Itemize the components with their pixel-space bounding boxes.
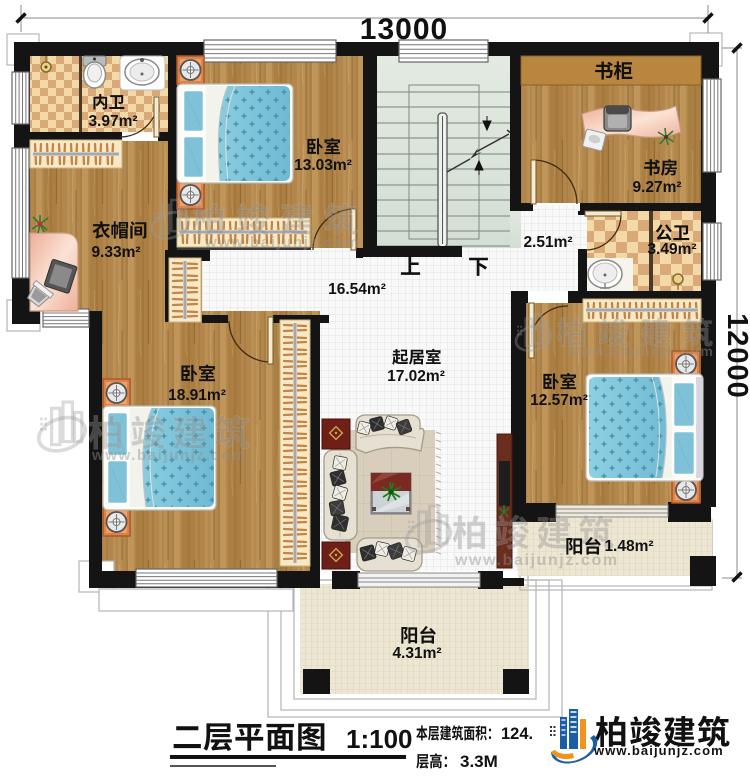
svg-text:www.baijunjz.com: www.baijunjz.com — [567, 343, 714, 359]
svg-text:4.31m²: 4.31m² — [392, 645, 441, 662]
svg-text:12.57m²: 12.57m² — [530, 392, 588, 409]
svg-text:1.48m²: 1.48m² — [604, 538, 653, 555]
svg-text:3.97m²: 3.97m² — [88, 113, 137, 130]
svg-text:www.baijunjz.com: www.baijunjz.com — [91, 447, 247, 464]
svg-text:124.: 124. — [501, 725, 533, 743]
svg-text:9.33m²: 9.33m² — [91, 244, 140, 261]
svg-text:www.baijunjz.com: www.baijunjz.com — [204, 234, 360, 251]
svg-text:www.baijunjz.com: www.baijunjz.com — [454, 552, 619, 569]
svg-text:12000: 12000 — [721, 313, 750, 399]
svg-text:www.baijunjz.com: www.baijunjz.com — [593, 743, 724, 758]
svg-text:3.49m²: 3.49m² — [647, 241, 696, 258]
svg-text:17.02m²: 17.02m² — [387, 368, 445, 385]
svg-text:2.51m²: 2.51m² — [523, 234, 572, 251]
svg-text:13000: 13000 — [360, 13, 448, 46]
svg-text:13.03m²: 13.03m² — [294, 157, 352, 174]
svg-text:18.91m²: 18.91m² — [168, 387, 226, 404]
svg-text:16.54m²: 16.54m² — [328, 281, 386, 298]
svg-text:3.3M: 3.3M — [460, 752, 498, 771]
svg-text:1:100: 1:100 — [346, 724, 413, 754]
svg-text:9.27m²: 9.27m² — [632, 179, 681, 196]
